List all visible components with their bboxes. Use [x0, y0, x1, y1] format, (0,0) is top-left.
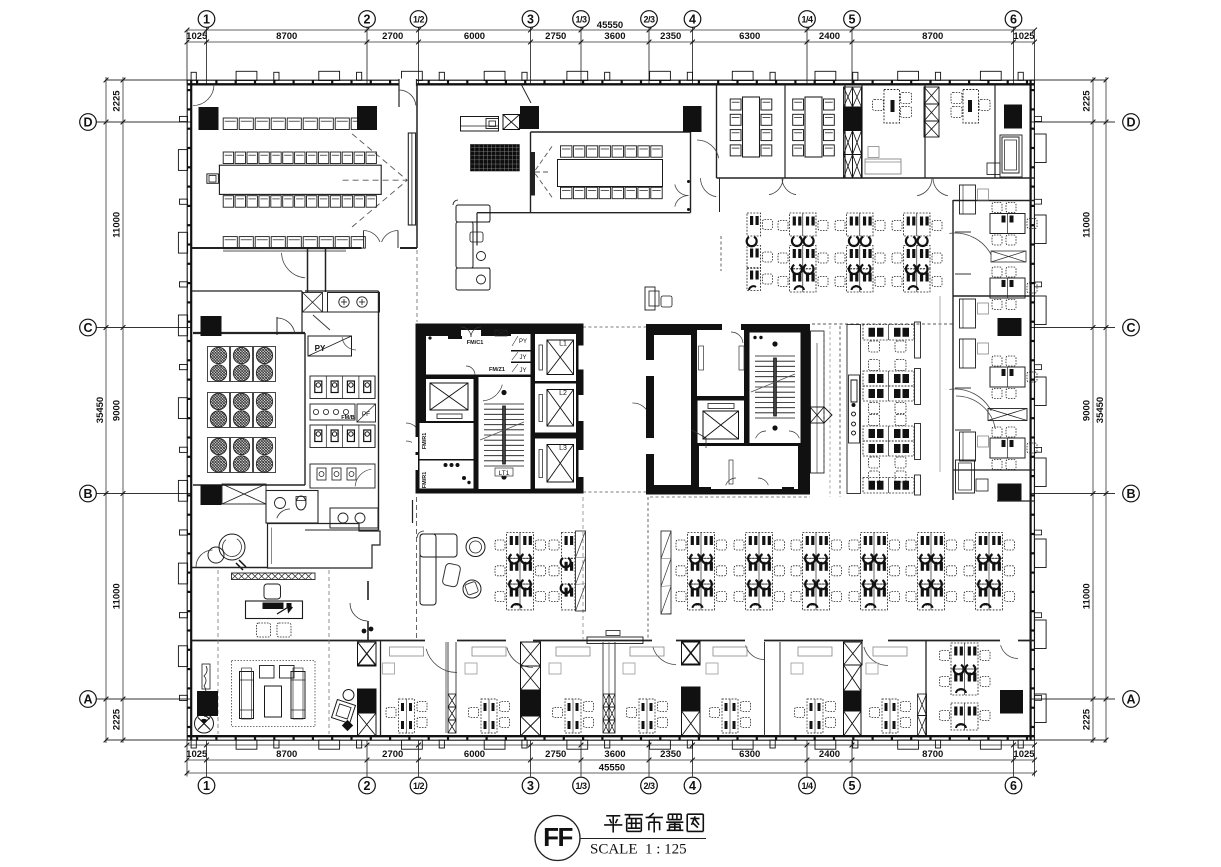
svg-text:FM/R1: FM/R1 [422, 433, 428, 450]
svg-text:2225: 2225 [112, 708, 123, 730]
svg-text:6: 6 [1010, 779, 1017, 793]
svg-text:3: 3 [527, 12, 534, 26]
svg-text:11000: 11000 [112, 583, 123, 609]
svg-text:2/3: 2/3 [643, 15, 655, 25]
svg-text:8700: 8700 [922, 31, 943, 42]
svg-text:1/2: 1/2 [413, 15, 425, 25]
svg-text:2/3: 2/3 [643, 781, 655, 791]
svg-text:WJ2: WJ2 [648, 406, 654, 417]
svg-text:1: 1 [203, 779, 210, 793]
svg-text:6: 6 [1010, 12, 1017, 26]
svg-text:45550: 45550 [597, 20, 623, 31]
svg-text:1/4: 1/4 [801, 781, 813, 791]
svg-text:5: 5 [849, 779, 856, 793]
svg-text:8700: 8700 [276, 31, 297, 42]
svg-text:1025: 1025 [1013, 31, 1035, 42]
svg-text:2350: 2350 [660, 749, 681, 760]
svg-text:11000: 11000 [1082, 583, 1093, 609]
svg-text:1/2: 1/2 [413, 781, 425, 791]
svg-text:8700: 8700 [922, 749, 943, 760]
svg-text:JY: JY [519, 355, 526, 361]
svg-text:8700: 8700 [276, 749, 297, 760]
svg-text:PY: PY [519, 339, 527, 345]
svg-text:1/3: 1/3 [575, 781, 587, 791]
svg-text:45550: 45550 [599, 763, 625, 774]
svg-text:2700: 2700 [382, 31, 403, 42]
svg-text:A: A [83, 692, 92, 706]
svg-text:2: 2 [364, 12, 371, 26]
svg-text:2225: 2225 [1082, 708, 1093, 730]
svg-text:C: C [83, 321, 92, 335]
svg-text:FM/C1: FM/C1 [467, 340, 484, 346]
svg-text:2750: 2750 [545, 749, 566, 760]
svg-text:2750: 2750 [545, 31, 566, 42]
svg-text:2400: 2400 [819, 749, 840, 760]
svg-text:2: 2 [364, 779, 371, 793]
svg-text:PY: PY [315, 344, 326, 353]
svg-text:6300: 6300 [739, 31, 760, 42]
svg-text:JY: JY [519, 368, 526, 374]
svg-text:D: D [1126, 115, 1135, 129]
svg-text:1/4: 1/4 [801, 15, 813, 25]
svg-text:2225: 2225 [1082, 90, 1093, 112]
svg-text:B: B [83, 487, 92, 501]
svg-text:L3: L3 [559, 445, 567, 452]
svg-text:5: 5 [849, 12, 856, 26]
svg-text:2700: 2700 [382, 749, 403, 760]
svg-text:11000: 11000 [1082, 212, 1093, 238]
svg-text:4: 4 [689, 779, 696, 793]
svg-text:3600: 3600 [604, 31, 625, 42]
svg-text:9000: 9000 [112, 400, 123, 421]
svg-text:FM/Z1: FM/Z1 [489, 367, 505, 373]
svg-text:6300: 6300 [739, 749, 760, 760]
svg-text:1025: 1025 [186, 749, 208, 760]
svg-text:6000: 6000 [464, 749, 485, 760]
svg-text:1: 1 [203, 12, 210, 26]
svg-text:L1: L1 [559, 341, 567, 348]
svg-text:PF: PF [362, 411, 370, 418]
svg-text:1/3: 1/3 [575, 15, 587, 25]
svg-text:35450: 35450 [1095, 397, 1106, 423]
svg-text:1025: 1025 [186, 31, 208, 42]
svg-text:A: A [1126, 692, 1135, 706]
svg-text:6000: 6000 [464, 31, 485, 42]
svg-text:FM/R1: FM/R1 [422, 472, 428, 489]
svg-text:B: B [1126, 487, 1135, 501]
svg-text:3600: 3600 [604, 749, 625, 760]
svg-text:9000: 9000 [1082, 400, 1093, 421]
svg-text:11000: 11000 [112, 212, 123, 238]
svg-text:FM/B: FM/B [341, 415, 354, 421]
svg-text:2225: 2225 [112, 90, 123, 112]
svg-text:2400: 2400 [819, 31, 840, 42]
svg-text:D: D [83, 115, 92, 129]
svg-text:SCALE 1 : 125: SCALE 1 : 125 [590, 842, 687, 858]
svg-text:35450: 35450 [95, 397, 106, 423]
svg-text:LT1: LT1 [499, 470, 510, 477]
svg-text:2350: 2350 [660, 31, 681, 42]
svg-text:1025: 1025 [1013, 749, 1035, 760]
svg-text:FF: FF [543, 822, 572, 852]
svg-text:C: C [1126, 321, 1135, 335]
svg-text:4: 4 [689, 12, 696, 26]
svg-text:L2: L2 [559, 390, 567, 397]
svg-text:3: 3 [527, 779, 534, 793]
